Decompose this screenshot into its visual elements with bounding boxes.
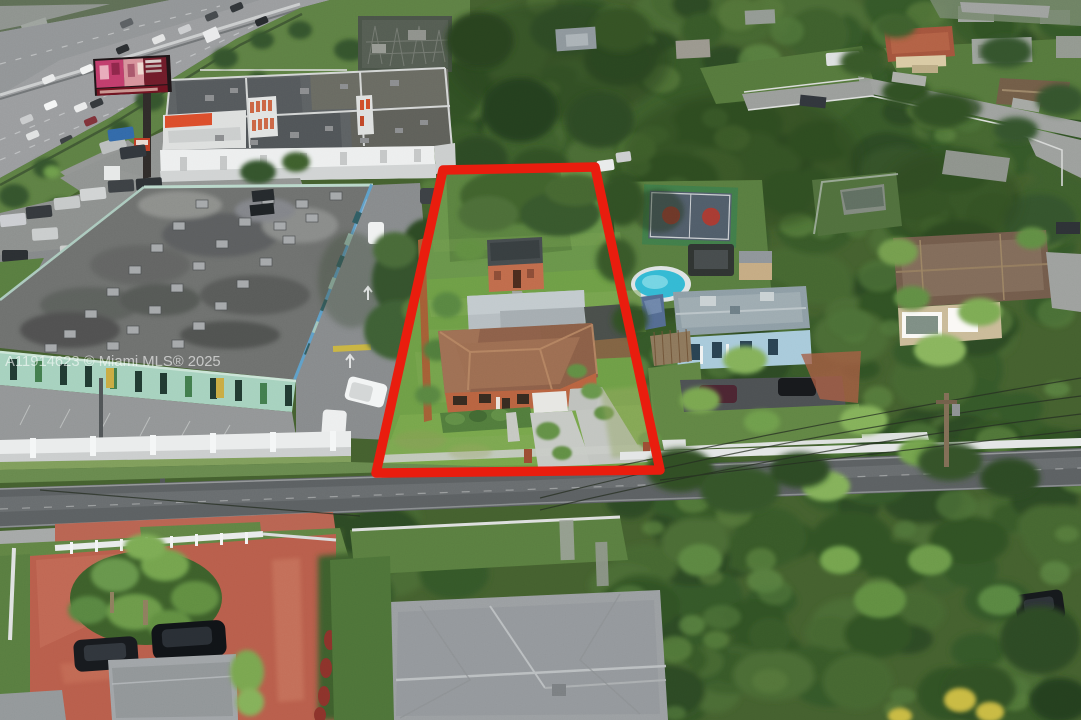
svg-text:A11914623 © Miami MLS® 2025: A11914623 © Miami MLS® 2025 [5,354,221,370]
